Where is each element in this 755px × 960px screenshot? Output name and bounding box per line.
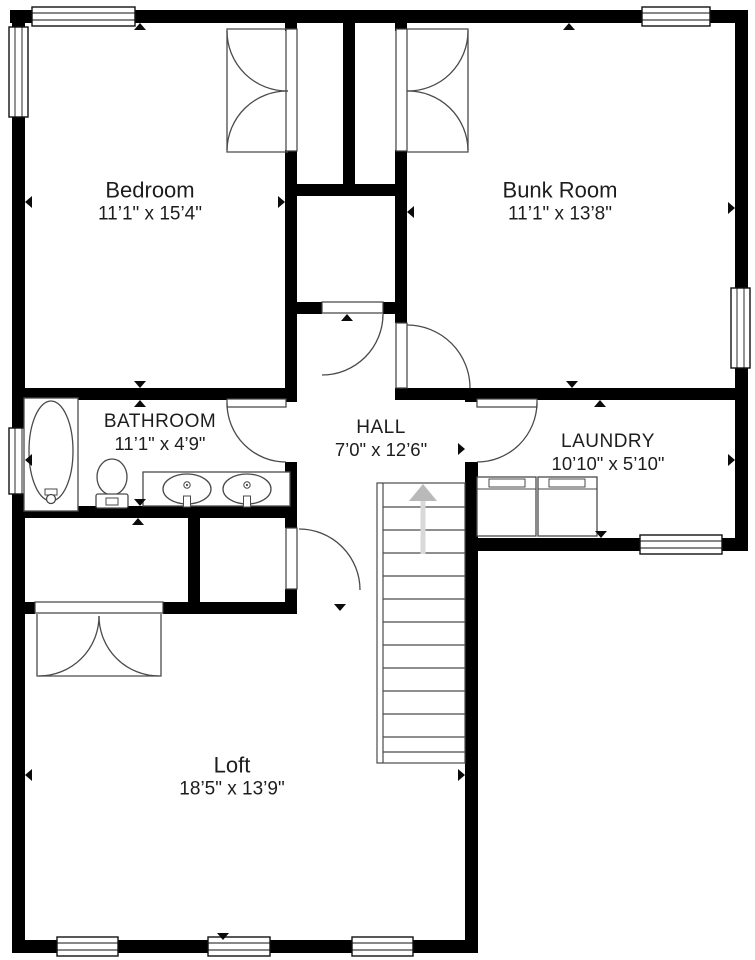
window xyxy=(57,937,118,956)
dimension-marker xyxy=(563,23,575,30)
bunk-closet-arc-top xyxy=(407,31,468,91)
bunk-door-arc xyxy=(407,325,470,388)
dimension-marker xyxy=(132,518,144,525)
dimension-marker xyxy=(25,196,32,208)
dimension-marker xyxy=(134,400,146,407)
window xyxy=(352,937,413,956)
window xyxy=(32,7,135,26)
dimension-marker xyxy=(458,443,465,455)
mid-closet-door-leaf xyxy=(322,302,383,313)
toilet-icon xyxy=(96,459,128,508)
dimension-marker xyxy=(458,769,465,781)
wall-loft-east xyxy=(465,462,478,953)
dimension-marker xyxy=(407,206,414,218)
wall-closet-bottom xyxy=(285,184,407,196)
lower-closet-door-leaf xyxy=(286,528,297,589)
bedroom-closet-arc-bottom xyxy=(227,91,288,150)
dimension-markers xyxy=(25,23,735,940)
laundry-door-leaf xyxy=(477,399,537,407)
bathroom-door-arc xyxy=(227,403,286,462)
wall-loft-north-left xyxy=(12,602,35,614)
wall-lower-closet-divider xyxy=(188,518,200,614)
bathroom-door-leaf xyxy=(227,399,286,407)
bunk-closet-arc-bottom xyxy=(407,91,468,150)
window xyxy=(642,7,710,26)
wall-bunk-laundry xyxy=(395,388,748,400)
bathtub-icon xyxy=(24,398,78,511)
loft-door-arc-left xyxy=(39,616,99,676)
wall-midcloset-bottom-right xyxy=(383,302,407,314)
dimension-marker xyxy=(278,196,285,208)
dimension-marker xyxy=(341,314,353,321)
bathroom-fixtures xyxy=(24,398,290,511)
loft-doors-frame xyxy=(35,602,163,613)
dimension-marker xyxy=(728,202,735,214)
dimension-marker xyxy=(25,769,32,781)
washer-icon xyxy=(477,477,536,536)
dimension-marker xyxy=(134,23,146,30)
dimension-marker xyxy=(728,454,735,466)
wall-closet-east-upper xyxy=(285,518,297,528)
window xyxy=(731,288,750,368)
mid-closet-door-arc xyxy=(322,314,383,375)
dimension-marker xyxy=(134,381,146,388)
wall-midcloset-bottom-left xyxy=(285,302,322,314)
dimension-marker xyxy=(566,381,578,388)
wall-loft-north-right xyxy=(163,602,297,614)
floor-plan: Bedroom 11’1" x 15’4" Bunk Room 11’1" x … xyxy=(0,0,755,960)
floor-plan-drawing xyxy=(0,0,755,960)
loft-door-arc-right xyxy=(99,616,159,676)
window xyxy=(208,937,270,956)
bedroom-closet-arc-top xyxy=(227,31,288,91)
bunk-closet-frame xyxy=(396,29,407,151)
bunk-door-leaf xyxy=(396,323,407,388)
double-vanity-icon xyxy=(143,472,290,507)
dimension-marker xyxy=(594,400,606,407)
laundry-appliances xyxy=(477,477,597,536)
dryer-icon xyxy=(538,477,597,536)
lower-closet-door-arc xyxy=(299,529,360,590)
window xyxy=(640,535,722,554)
wall-b-main xyxy=(395,150,407,323)
bedroom-closet-frame xyxy=(286,29,297,151)
wall-right xyxy=(735,10,748,551)
wall-top-closet-divider xyxy=(343,23,355,184)
dimension-marker xyxy=(334,604,346,611)
window xyxy=(9,27,28,117)
stair-arrow-shaft xyxy=(421,500,426,554)
staircase xyxy=(377,483,465,763)
laundry-door-arc xyxy=(477,403,537,462)
